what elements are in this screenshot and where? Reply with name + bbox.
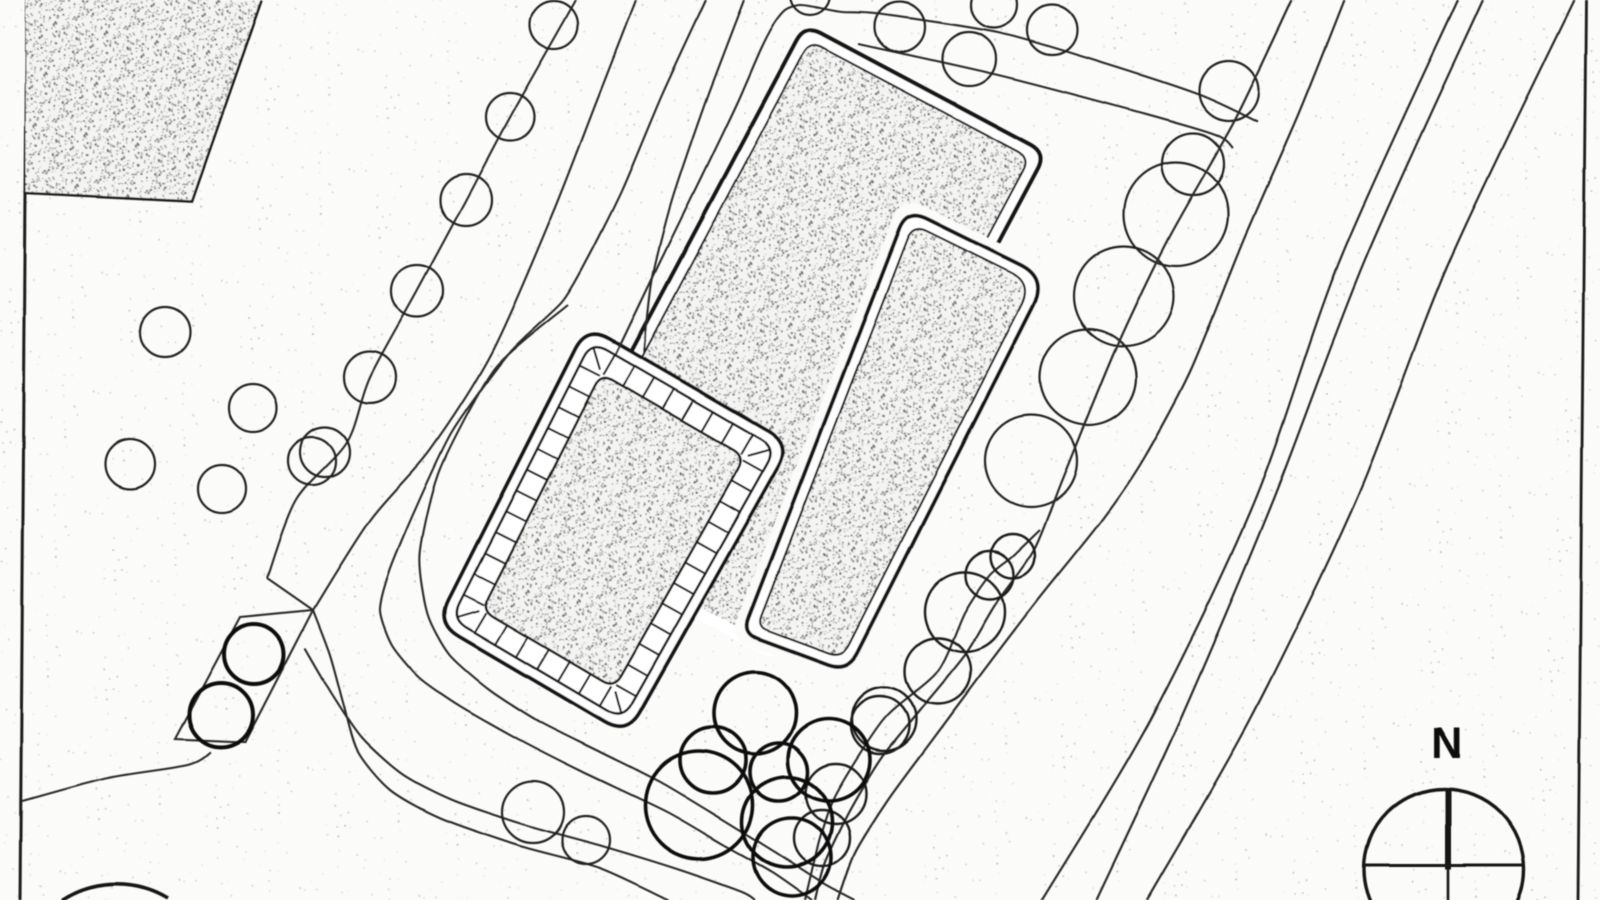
- svg-text:N: N: [1431, 719, 1463, 768]
